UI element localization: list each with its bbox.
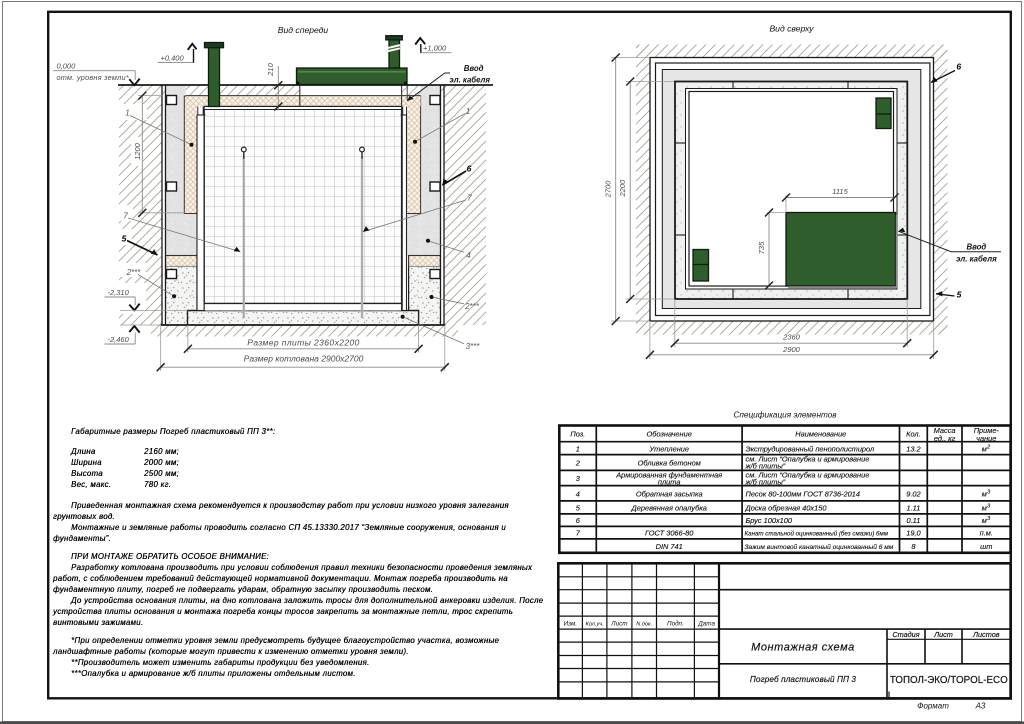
svg-text:1: 1	[466, 107, 470, 116]
svg-text:1: 1	[576, 445, 580, 454]
svg-text:19,0: 19,0	[906, 529, 921, 538]
svg-text:Формат: Формат	[917, 702, 949, 711]
svg-text:Монтажная схема: Монтажная схема	[751, 642, 855, 654]
svg-text:6: 6	[576, 516, 581, 525]
svg-text:Кол.уч.: Кол.уч.	[585, 621, 603, 627]
svg-text:Обозначение: Обозначение	[647, 430, 692, 439]
svg-text:+0,400: +0,400	[161, 54, 185, 63]
svg-text:Брус 100х100: Брус 100х100	[746, 516, 793, 525]
svg-text:А3: А3	[975, 702, 986, 711]
svg-text:3: 3	[987, 504, 991, 510]
svg-text:отм. уровня земли*: отм. уровня земли*	[57, 73, 130, 82]
svg-text:0.11: 0.11	[906, 516, 920, 525]
svg-text:ТОПОЛ-ЭКО/TOPOL-ECO: ТОПОЛ-ЭКО/TOPOL-ECO	[890, 675, 1008, 686]
svg-text:Наименование: Наименование	[795, 430, 846, 439]
svg-text:9.02: 9.02	[906, 490, 920, 499]
svg-text:Стадия: Стадия	[892, 630, 919, 639]
svg-text:плита: плита	[658, 477, 681, 486]
svg-text:Размер плиты 2360х2200: Размер плиты 2360х2200	[247, 338, 359, 348]
svg-text:Спецификация элементов: Спецификация элементов	[733, 411, 837, 420]
svg-text:3***: 3***	[466, 342, 481, 351]
svg-text:Вид сверху: Вид сверху	[769, 24, 814, 34]
svg-text:м: м	[982, 445, 987, 454]
svg-text:м: м	[982, 516, 987, 525]
svg-text:2***: 2***	[464, 302, 480, 311]
svg-text:6: 6	[467, 164, 472, 174]
svg-text:м: м	[982, 490, 987, 499]
svg-text:2200: 2200	[618, 179, 627, 198]
svg-text:Канат стальной оцинкованный (б: Канат стальной оцинкованный (без смазки)…	[745, 531, 889, 538]
svg-text:5: 5	[957, 290, 962, 300]
svg-text:1115: 1115	[832, 187, 848, 196]
svg-text:2: 2	[575, 459, 580, 468]
svg-text:-2,460: -2,460	[108, 335, 130, 344]
svg-text:6: 6	[956, 62, 961, 72]
svg-text:Листов: Листов	[972, 630, 1000, 639]
svg-text:ж/б плиты”: ж/б плиты”	[745, 477, 786, 486]
svg-text:Утепление: Утепление	[648, 445, 689, 454]
svg-text:7: 7	[576, 529, 581, 538]
svg-text:2360: 2360	[782, 333, 801, 342]
svg-text:чание: чание	[976, 434, 996, 443]
svg-text:2***: 2***	[126, 268, 142, 277]
svg-text:Кол.: Кол.	[906, 430, 921, 439]
svg-text:эл. кабеля: эл. кабеля	[956, 255, 997, 264]
svg-text:ж/б плиты”: ж/б плиты”	[745, 461, 786, 470]
svg-text:Ввод: Ввод	[464, 64, 484, 73]
svg-text:Песок 80-100мм ГОСТ 8736-2014: Песок 80-100мм ГОСТ 8736-2014	[746, 490, 860, 499]
svg-text:ГОСТ 3066-80: ГОСТ 3066-80	[645, 529, 694, 538]
svg-text:п.м.: п.м.	[980, 529, 993, 538]
svg-text:Доска обрезная 40х150: Доска обрезная 40х150	[745, 504, 828, 513]
svg-text:4: 4	[576, 490, 580, 499]
svg-text:шт: шт	[980, 542, 992, 551]
svg-text:13.2: 13.2	[906, 445, 920, 454]
svg-text:3: 3	[987, 516, 991, 522]
svg-text:3: 3	[987, 490, 991, 496]
svg-text:5: 5	[122, 234, 127, 244]
svg-text:эл. кабеля: эл. кабеля	[449, 76, 490, 85]
svg-text:1: 1	[125, 109, 129, 118]
svg-text:Деревянная опалубка: Деревянная опалубка	[631, 504, 707, 513]
svg-text:8: 8	[911, 542, 916, 551]
svg-text:Размер котлована 2900х2700: Размер котлована 2900х2700	[244, 353, 364, 363]
svg-text:2900: 2900	[782, 345, 801, 354]
svg-text:1.11: 1.11	[906, 504, 920, 513]
svg-text:Лист: Лист	[933, 630, 953, 639]
svg-text:Дата: Дата	[697, 620, 715, 627]
svg-text:2: 2	[986, 445, 990, 451]
svg-text:Ввод: Ввод	[966, 243, 986, 252]
svg-text:Обратная засыпка: Обратная засыпка	[636, 490, 703, 499]
svg-text:Погреб пластиковый ПП 3: Погреб пластиковый ПП 3	[750, 675, 857, 684]
svg-text:Лист: Лист	[610, 620, 627, 627]
svg-text:DIN 741: DIN 741	[656, 542, 683, 551]
svg-text:Обливка бетоном: Обливка бетоном	[638, 459, 701, 468]
svg-text:4: 4	[466, 251, 471, 260]
svg-text:210: 210	[266, 62, 275, 76]
svg-text:3: 3	[576, 474, 581, 483]
svg-text:5: 5	[576, 504, 581, 513]
svg-text:2700: 2700	[604, 180, 613, 199]
svg-text:N док.: N док.	[636, 621, 652, 627]
svg-text:-2,310: -2,310	[108, 288, 130, 297]
svg-text:Изм.: Изм.	[564, 620, 577, 627]
svg-text:Экструдированный пенополистиро: Экструдированный пенополистирол	[746, 445, 875, 454]
svg-text:Зажим винтовой канатный оцинко: Зажим винтовой канатный оцинкованный 6 м…	[745, 543, 894, 551]
svg-text:Поз.: Поз.	[570, 430, 585, 439]
svg-text:м: м	[982, 504, 987, 513]
svg-text:1200: 1200	[133, 142, 142, 160]
svg-text:735: 735	[757, 241, 766, 254]
svg-text:7: 7	[467, 194, 472, 203]
svg-text:0,000: 0,000	[57, 62, 77, 71]
svg-text:Подп.: Подп.	[667, 619, 684, 627]
svg-text:7: 7	[123, 212, 128, 221]
svg-text:+1,000: +1,000	[423, 44, 447, 53]
svg-text:Вид спереди: Вид спереди	[278, 25, 329, 35]
svg-text:ед., кг: ед., кг	[934, 434, 956, 443]
